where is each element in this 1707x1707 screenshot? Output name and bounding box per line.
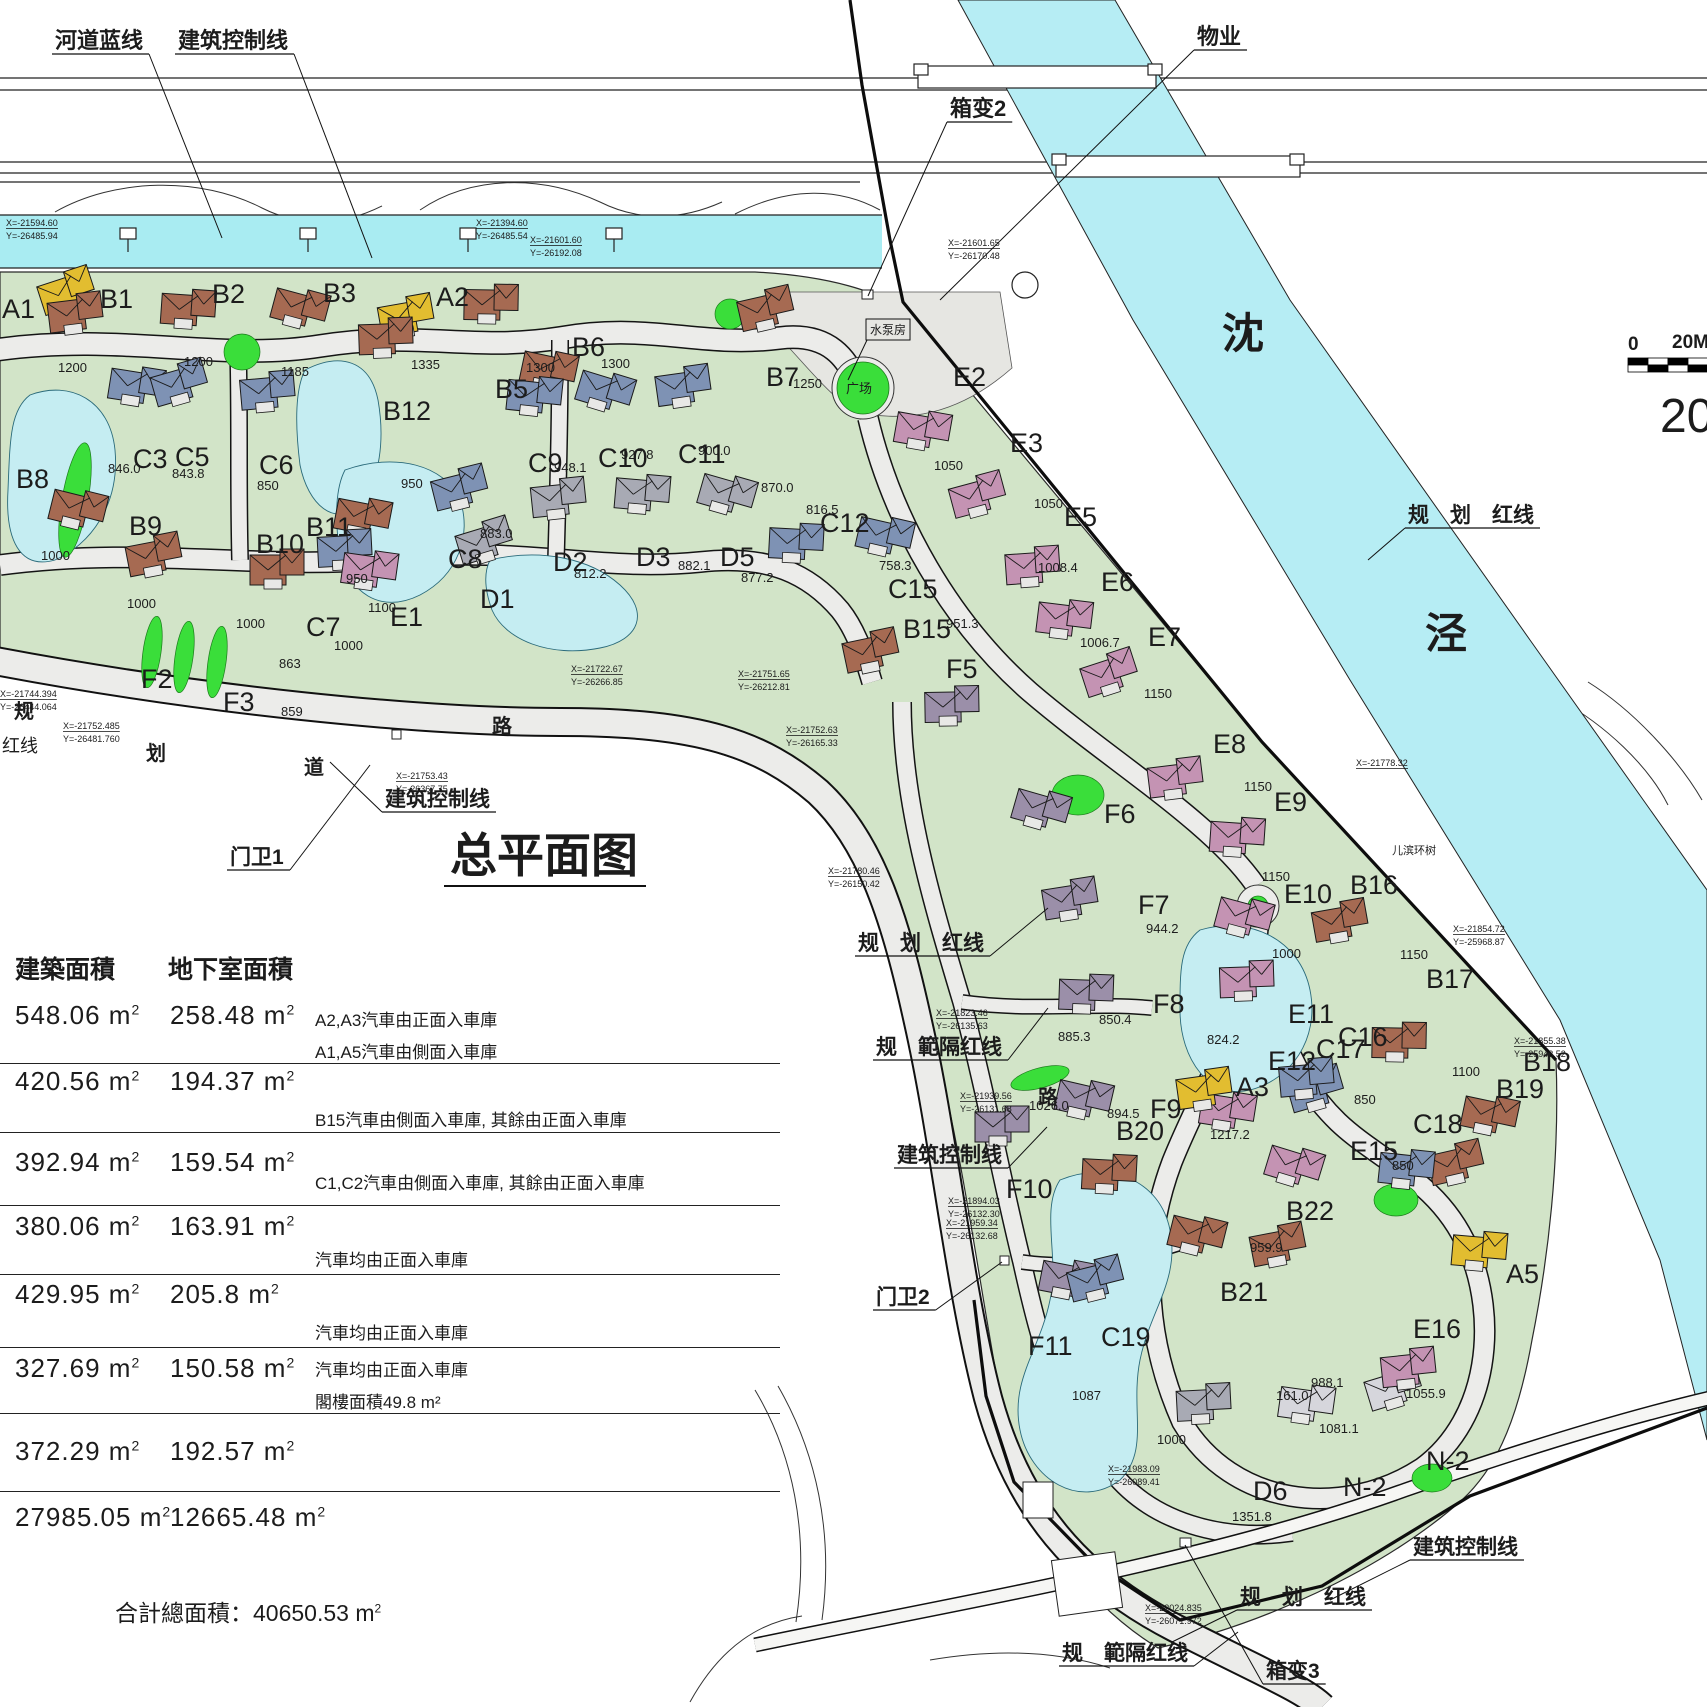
plot-label: F7 [1138, 890, 1170, 920]
annotation-label: 箱变3 [1266, 1659, 1320, 1683]
plot-area-label: 758.3 [879, 558, 912, 573]
area-table: 548.06 m2258.48 m2A2,A3汽車由正面入車庫A1,A5汽車由側… [0, 998, 780, 1560]
area-value: 372.29 m2 [15, 1436, 140, 1467]
survey-lines [0, 78, 1707, 182]
plot-area-label: 1050 [1034, 496, 1063, 511]
plot-label: A5 [1506, 1259, 1539, 1289]
plot-area-label: 1000 [1272, 946, 1301, 961]
plot-label: B8 [16, 464, 49, 494]
coordinate-y: Y=-26165.33 [786, 738, 838, 748]
plot-area-label: 1008.4 [1038, 560, 1078, 575]
plot-label: B15 [903, 614, 951, 644]
coordinate-x: X=-21959.34 [946, 1218, 998, 1228]
table-header-basement: 地下室面積 [168, 950, 293, 986]
road-name-char: 规 [14, 700, 34, 723]
coordinate-x: X=-21780.46 [828, 866, 880, 876]
annotation-label: 建筑控制线 [897, 1143, 1002, 1167]
plot-label: C15 [888, 574, 938, 604]
plot-area-label: 950 [401, 476, 423, 491]
total-area-footer: 合計總面積：40650.53 m2 [115, 1594, 381, 1628]
plot-label: B10 [256, 529, 304, 559]
plot-area-label: 1055.9 [1406, 1386, 1446, 1401]
plot-area-label: 883.0 [480, 526, 513, 541]
plot-area-label: 850.4 [1099, 1012, 1132, 1027]
plot-label: B21 [1220, 1277, 1268, 1307]
coordinate-y: Y=-26481.760 [63, 734, 120, 744]
plot-area-label: 1250 [793, 376, 822, 391]
plot-area-label: 161.0 [1276, 1388, 1309, 1403]
plot-label: F11 [1028, 1331, 1073, 1361]
scale-tick-20m: 20M [1672, 332, 1707, 353]
coordinate-y: Y=-26485.94 [6, 231, 58, 241]
plot-label: F8 [1153, 989, 1185, 1019]
coordinate-y: Y=-26170.48 [948, 251, 1000, 261]
plot-area-label: 1000 [127, 596, 156, 611]
plot-label: B16 [1350, 870, 1398, 900]
area-value: 194.37 m2 [170, 1066, 295, 1097]
total-area-label: 合計總面積： [115, 1600, 253, 1626]
plot-area-label: 1000 [236, 616, 265, 631]
plot-label: E12 [1268, 1046, 1316, 1076]
area-table-row: 429.95 m2205.8 m2汽車均由正面入車庫 [0, 1275, 780, 1348]
plot-label: B17 [1426, 964, 1474, 994]
plot-area-label: 850 [1354, 1092, 1376, 1107]
plot-area-label: 1150 [1144, 686, 1172, 701]
scale-bar-segment [1688, 358, 1707, 365]
area-value: 12665.48 m2 [170, 1502, 326, 1533]
coordinate-y: Y=-26367.75 [396, 784, 448, 794]
plot-area-label: 1200 [184, 354, 213, 369]
plot-label: D5 [720, 542, 755, 572]
plot-label: C6 [259, 450, 294, 480]
coordinate-x: X=-21778.32 [1356, 758, 1408, 768]
area-table-row: 392.94 m2159.54 m2C1,C2汽車由側面入車庫, 其餘由正面入車… [0, 1133, 780, 1206]
plot-area-label: 816.5 [806, 502, 839, 517]
plot-label: B22 [1286, 1196, 1334, 1226]
plot-area-label: 1100 [368, 600, 396, 615]
plot-label: F2 [141, 664, 173, 694]
annotation-label: 河道蓝线 [55, 28, 143, 53]
plot-area-label: 846.0 [108, 461, 141, 476]
coordinate-x: X=-21939.56 [960, 1091, 1012, 1101]
scale-bar-segment [1668, 365, 1688, 372]
plot-label: E16 [1413, 1314, 1461, 1344]
plot-label: D1 [480, 584, 515, 614]
plot-area-label: 1150 [1400, 947, 1428, 962]
river-band [0, 215, 882, 268]
plot-area-label: 944.2 [1146, 921, 1179, 936]
plot-label: E8 [1213, 729, 1246, 759]
garage-note: 汽車均由正面入車庫 [315, 1319, 468, 1344]
coordinate-x: X=-21894.03 [948, 1196, 1000, 1206]
plot-label: B5 [495, 374, 528, 404]
plot-label: D6 [1253, 1476, 1288, 1506]
area-value: 392.94 m2 [15, 1147, 140, 1178]
area-table-row: 27985.05 m212665.48 m2 [0, 1492, 780, 1560]
plot-area-label: 882.1 [678, 558, 711, 573]
plot-area-label: 812.2 [574, 566, 607, 581]
coordinate-x: X=-21594.60 [6, 218, 58, 228]
plot-area-label: 1100 [1452, 1064, 1480, 1079]
scale-bar-segment [1648, 365, 1668, 372]
area-value: 192.57 m2 [170, 1436, 295, 1467]
annotation-leader [330, 762, 382, 812]
plot-area-label: 1351.8 [1232, 1509, 1272, 1524]
scale-big-number: 20 [1660, 390, 1707, 443]
plot-label: B9 [129, 511, 162, 541]
plot-label: E15 [1350, 1136, 1398, 1166]
area-table-row: 420.56 m2194.37 m2B15汽車由側面入車庫, 其餘由正面入車庫 [0, 1064, 780, 1133]
area-value: 420.56 m2 [15, 1066, 140, 1097]
annotation-label: 规 划 红线 [1408, 503, 1534, 527]
area-value: 205.8 m2 [170, 1279, 280, 1310]
garage-note: 閣樓面積49.8 m² [315, 1388, 441, 1413]
plot-label: A2 [436, 282, 469, 312]
coordinate-y: Y=-26135.63 [936, 1021, 988, 1031]
area-table-row: 380.06 m2163.91 m2汽車均由正面入車庫 [0, 1206, 780, 1275]
plot-label: B11 [306, 512, 352, 542]
area-value: 163.91 m2 [170, 1211, 295, 1242]
coordinate-y: Y=-26192.08 [530, 248, 582, 258]
plot-area-label: 1000 [1157, 1432, 1186, 1447]
annotation-label: 规 划 红线 [858, 931, 984, 955]
road-name-char: 路 [492, 714, 513, 738]
garage-note: 汽車均由正面入車庫 [315, 1246, 468, 1271]
coordinate-y: Y=-25968.87 [1453, 937, 1505, 947]
plot-area-label: 1000 [334, 638, 363, 653]
plot-area-label: 948.1 [554, 460, 587, 475]
annotation-label: 门卫1 [230, 845, 284, 869]
area-table-row: 548.06 m2258.48 m2A2,A3汽車由正面入車庫A1,A5汽車由側… [0, 998, 780, 1064]
plot-area-label: 885.3 [1058, 1029, 1091, 1044]
coordinate-y: Y=-26266.85 [571, 677, 623, 687]
annotation-label: 规 範隔红线 [876, 1035, 1002, 1059]
coordinate-x: X=-21744.394 [0, 689, 57, 699]
area-value: 27985.05 m2 [15, 1502, 171, 1533]
well-symbol [1012, 272, 1038, 298]
plot-label: N-2 [1343, 1472, 1387, 1502]
garage-note: B15汽車由側面入車庫, 其餘由正面入車庫 [315, 1106, 627, 1131]
plot-area-label: 1006.7 [1080, 635, 1120, 650]
plot-area-label: 894.5 [1107, 1106, 1140, 1121]
plot-label: A3 [1236, 1072, 1269, 1102]
garage-note: C1,C2汽車由側面入車庫, 其餘由正面入車庫 [315, 1169, 645, 1194]
plot-area-label: 1217.2 [1210, 1127, 1250, 1142]
coordinate-x: X=-21823.46 [936, 1008, 988, 1018]
annotation-label: 广场 [846, 381, 872, 396]
table-header-building: 建築面積 [15, 950, 115, 986]
plot-label: C17 [1316, 1034, 1366, 1064]
plot-label: A1 [2, 294, 35, 324]
coordinate-x: X=-22024.835 [1145, 1603, 1202, 1613]
plot-label: B12 [383, 396, 431, 426]
plot-area-label: 1050 [934, 458, 963, 473]
coordinate-x: X=-21753.43 [396, 771, 448, 781]
plot-label: E9 [1274, 787, 1307, 817]
plot-label: C18 [1413, 1109, 1463, 1139]
plot-area-label: 1087 [1072, 1388, 1101, 1403]
plot-area-label: 988.1 [1311, 1375, 1344, 1390]
plot-label: F6 [1104, 799, 1136, 829]
annotation-label: 红线 [2, 736, 38, 756]
river-name-char: 沈 [1222, 310, 1264, 357]
area-value: 258.48 m2 [170, 1000, 295, 1031]
plot-area-label: 870.0 [761, 480, 794, 495]
plot-label: E11 [1288, 999, 1334, 1029]
annotation-label: 水泵房 [870, 322, 906, 337]
coordinate-x: X=-21722.67 [571, 664, 623, 674]
coordinate-y: Y=-26212.81 [738, 682, 790, 692]
annotation-label: 规 範隔红线 [1062, 1641, 1188, 1665]
plot-area-label: 1335 [411, 357, 440, 372]
scale-bar-segment [1648, 358, 1668, 365]
annotation-label: 物业 [1197, 24, 1241, 49]
plot-label: E3 [1010, 428, 1043, 458]
coordinate-x: X=-21394.60 [476, 218, 528, 228]
scale-bar-segment [1628, 358, 1648, 365]
coordinate-y: Y=-26132.68 [946, 1231, 998, 1241]
area-value: 429.95 m2 [15, 1279, 140, 1310]
scale-bar-segment [1668, 358, 1688, 365]
plot-area-label: 1081.1 [1319, 1421, 1359, 1436]
annotation-label: 箱变2 [950, 96, 1006, 121]
annotation-label: 建筑控制线 [178, 28, 288, 53]
plot-label: F10 [1006, 1174, 1053, 1204]
plot-area-label: 951.3 [946, 616, 979, 631]
coordinate-x: X=-21855.38 [1514, 1036, 1566, 1046]
plot-label: E10 [1284, 879, 1332, 909]
plot-label: B3 [323, 278, 356, 308]
annotation-label: 规 划 红线 [1240, 1585, 1366, 1609]
plot-area-label: 843.8 [172, 466, 205, 481]
coordinate-y: Y=-25943.52 [1514, 1049, 1566, 1059]
plot-label: C8 [448, 544, 483, 574]
plot-label: N-2 [1426, 1446, 1470, 1476]
coordinate-x: X=-21752.63 [786, 725, 838, 735]
garage-note: 汽車均由正面入車庫 [315, 1356, 468, 1381]
annotation-label: 建筑控制线 [1413, 1535, 1518, 1559]
area-value: 159.54 m2 [170, 1147, 295, 1178]
area-value: 327.69 m2 [15, 1353, 140, 1384]
annotation-label: 儿滨环树 [1392, 843, 1436, 857]
plot-label: F3 [223, 687, 255, 717]
plot-label: E5 [1064, 502, 1097, 532]
plot-area-label: 1000 [41, 548, 70, 563]
road-name-char: 道 [304, 755, 324, 779]
coordinate-y: Y=-26131.68 [960, 1104, 1012, 1114]
garage-note: A1,A5汽車由側面入車庫 [315, 1038, 497, 1063]
plot-label: C19 [1101, 1322, 1151, 1352]
annotation-leader [149, 54, 222, 238]
plot-label: B2 [212, 279, 245, 309]
area-value: 548.06 m2 [15, 1000, 140, 1031]
plot-area-label: 1150 [1244, 779, 1272, 794]
plot-label: E2 [953, 362, 986, 392]
plot-area-label: 877.2 [741, 570, 774, 585]
plot-label: E7 [1148, 622, 1181, 652]
coordinate-x: X=-21854.72 [1453, 924, 1505, 934]
plot-area-label: 1185 [281, 364, 309, 379]
plot-area-label: 859 [281, 704, 303, 719]
area-value: 380.06 m2 [15, 1211, 140, 1242]
plot-label: B19 [1496, 1074, 1544, 1104]
area-table-row: 327.69 m2150.58 m2汽車均由正面入車庫閣樓面積49.8 m² [0, 1348, 780, 1414]
annotation-leader [868, 122, 947, 296]
total-area-unit: m [355, 1600, 374, 1626]
coordinate-x: X=-21751.65 [738, 669, 790, 679]
plot-area-label: 900.0 [698, 443, 731, 458]
plot-label: B1 [100, 284, 133, 314]
annotation-leader [290, 765, 370, 870]
coordinate-x: X=-21601.65 [948, 238, 1000, 248]
coordinate-x: X=-21983.09 [1108, 1464, 1160, 1474]
plot-area-label: 850 [257, 478, 279, 493]
annotation-label: 门卫2 [876, 1285, 930, 1309]
scale-tick-zero: 0 [1628, 334, 1639, 355]
coordinate-y: Y=-26485.54 [476, 231, 528, 241]
area-value: 150.58 m2 [170, 1353, 295, 1384]
total-area-value: 40650.53 [253, 1600, 349, 1626]
site-plan-page: A1B11200B21200B31185A21335B51300B61300B7… [0, 0, 1707, 1707]
road-name-char: 路 [1038, 1085, 1059, 1109]
plot-label: F5 [946, 654, 978, 684]
coordinate-x: X=-21752.485 [63, 721, 120, 731]
scale-bar-segment [1688, 365, 1707, 372]
coordinate-y: Y=-26150.42 [828, 879, 880, 889]
plot-label: D3 [636, 542, 671, 572]
drawing-title: 总平面图 [450, 829, 638, 882]
plot-area-label: 927.8 [621, 447, 654, 462]
coordinate-x: X=-21601.60 [530, 235, 582, 245]
plot-area-label: 959.9 [1250, 1240, 1283, 1255]
garage-note: A2,A3汽車由正面入車庫 [315, 1006, 497, 1031]
scale-bar-segment [1628, 365, 1648, 372]
plot-area-label: 1200 [58, 360, 87, 375]
plot-label: F9 [1150, 1094, 1182, 1124]
plot-area-label: 950 [346, 571, 368, 586]
total-area-sup: 2 [375, 1601, 382, 1615]
plot-area-label: 863 [279, 656, 301, 671]
plot-area-label: 1300 [601, 356, 630, 371]
plot-area-label: 1300 [526, 360, 555, 375]
plot-area-label: 824.2 [1207, 1032, 1240, 1047]
coordinate-y: Y=-26089.41 [1108, 1477, 1160, 1487]
river-name-char: 泾 [1425, 610, 1467, 657]
road-name-char: 划 [146, 742, 166, 765]
coordinate-y: Y=-26071.972 [1145, 1616, 1202, 1626]
area-table-row: 372.29 m2192.57 m2 [0, 1414, 780, 1492]
plot-label: E6 [1101, 567, 1134, 597]
